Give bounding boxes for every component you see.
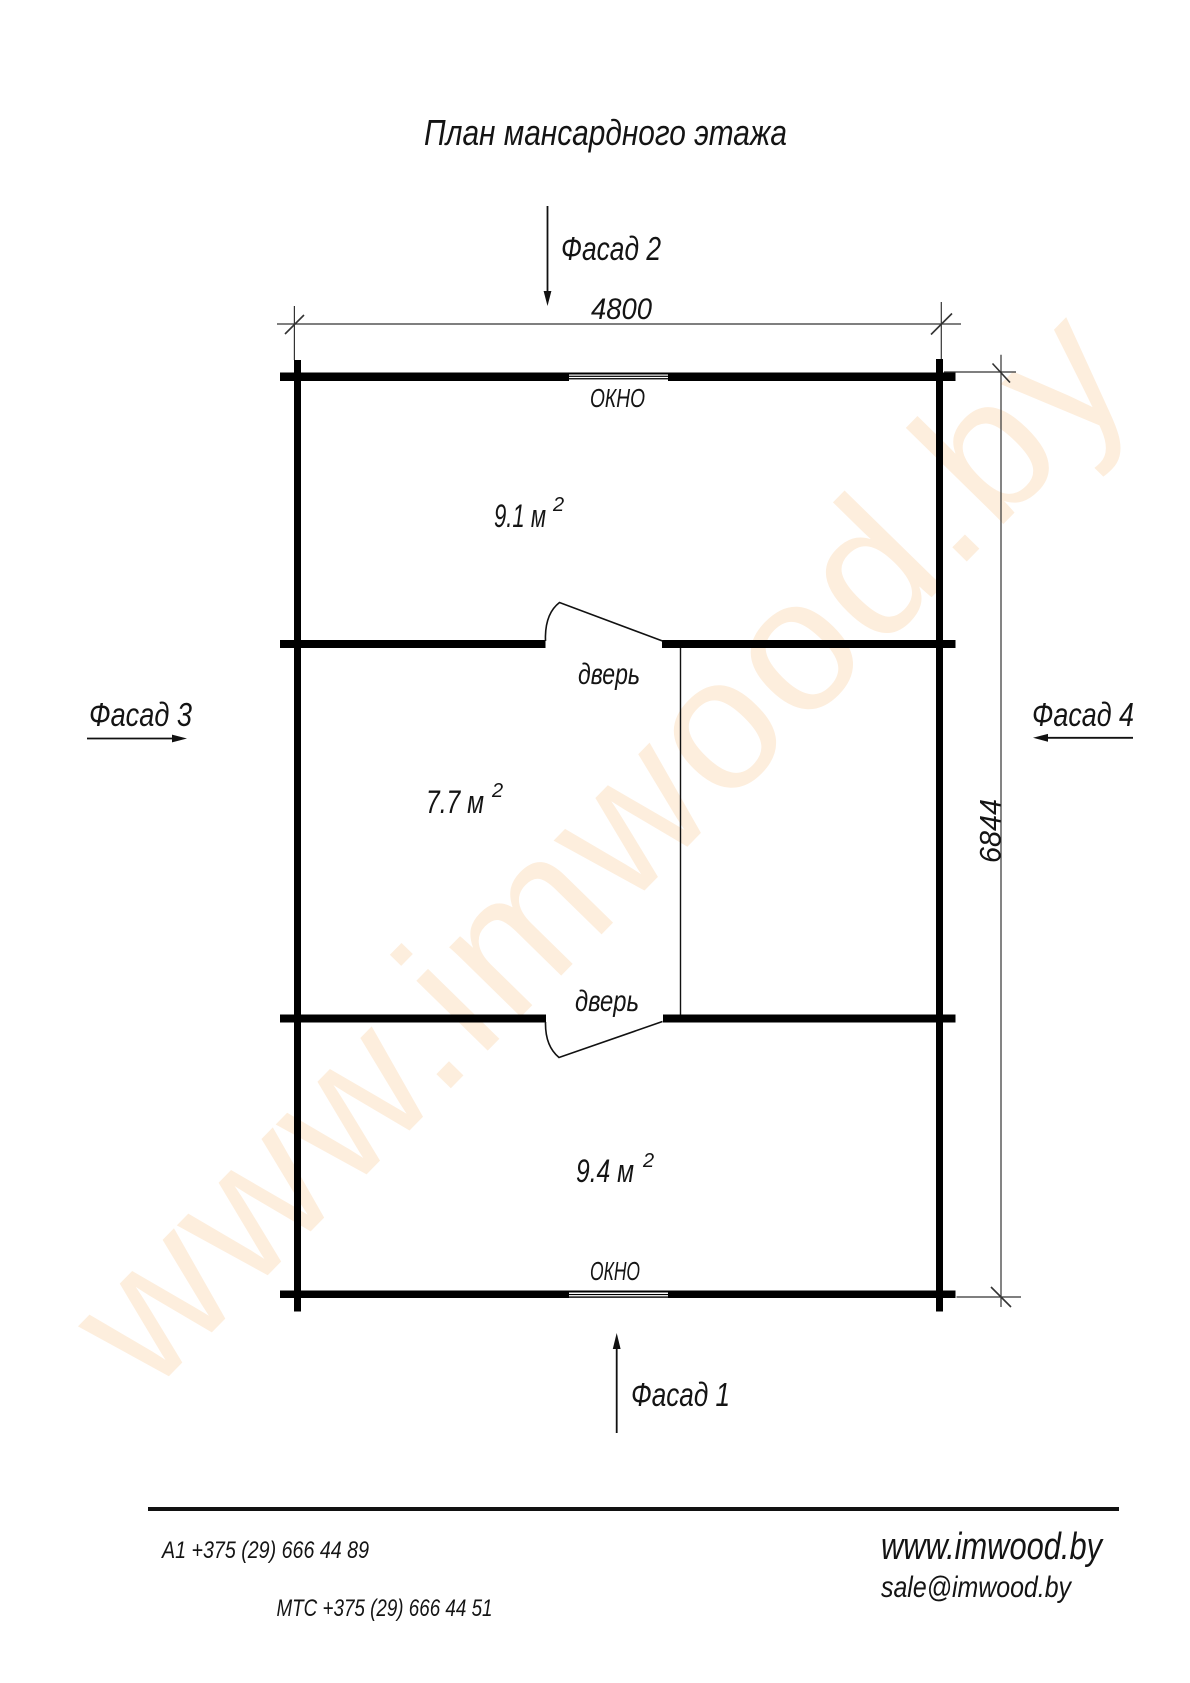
svg-text:План мансардного этажа: План мансардного этажа [424, 112, 787, 153]
svg-text:sale@imwood.by: sale@imwood.by [881, 1571, 1073, 1604]
svg-text:Фасад 2: Фасад 2 [561, 230, 661, 267]
svg-text:дверь: дверь [578, 658, 640, 691]
svg-text:7.7 м: 7.7 м [426, 784, 484, 820]
svg-text:6844: 6844 [975, 799, 1008, 863]
svg-text:9.4 м: 9.4 м [576, 1153, 634, 1189]
svg-text:2: 2 [491, 780, 503, 802]
svg-text:ОКНО: ОКНО [590, 1256, 640, 1286]
svg-text:2: 2 [642, 1150, 654, 1172]
svg-text:дверь: дверь [575, 985, 639, 1018]
svg-text:www.imwood.by: www.imwood.by [881, 1526, 1104, 1568]
svg-text:Фасад 3: Фасад 3 [89, 696, 193, 733]
svg-text:4800: 4800 [591, 293, 653, 326]
svg-text:МТС +375 (29) 666 44 51: МТС +375 (29) 666 44 51 [277, 1595, 493, 1622]
svg-text:А1 +375 (29) 666 44 89: А1 +375 (29) 666 44 89 [160, 1537, 369, 1564]
svg-text:ОКНО: ОКНО [590, 383, 645, 413]
svg-text:2: 2 [552, 494, 564, 516]
svg-text:Фасад 4: Фасад 4 [1032, 696, 1134, 733]
svg-text:Фасад 1: Фасад 1 [631, 1376, 730, 1413]
svg-text:9.1 м: 9.1 м [494, 498, 546, 534]
